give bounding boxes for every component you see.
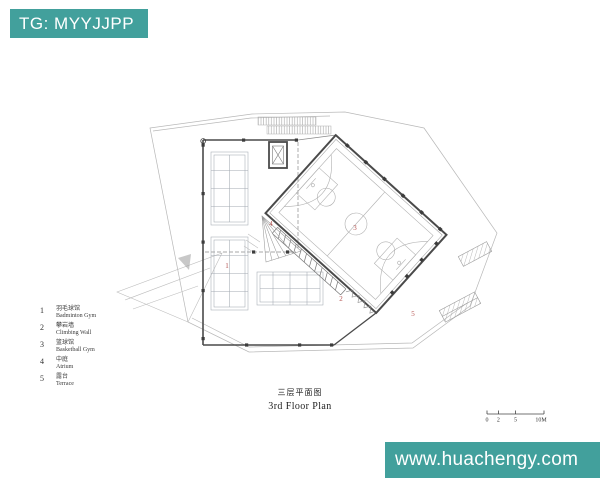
watermark-banner-bottom-right: www.huachengy.com — [385, 442, 600, 478]
legend-item-basketball: 3 篮球馆 Basketball Gym — [40, 340, 170, 354]
legend-label-zh: 露台 — [56, 374, 74, 381]
terrace-bench — [458, 242, 491, 267]
legend-item-climbing-wall: 2 攀岩墙 Climbing Wall — [40, 323, 170, 337]
svg-text:0: 0 — [486, 418, 489, 424]
legend-item-atrium: 4 中庭 Atrium — [40, 357, 170, 371]
elevator-shaft — [269, 142, 287, 168]
legend-label-en: Climbing Wall — [56, 330, 91, 337]
terrace-bench — [439, 292, 480, 322]
terrace-stairs-edge — [346, 287, 375, 314]
legend-number: 4 — [40, 357, 49, 371]
legend-item-badminton: 1 羽毛球馆 Badminton Gym — [40, 306, 170, 320]
room-legend: 1 羽毛球馆 Badminton Gym 2 攀岩墙 Climbing Wall… — [40, 306, 170, 391]
scale-bar-labels: 0 2 5 10M — [486, 418, 548, 424]
legend-label-zh: 篮球馆 — [56, 340, 95, 347]
legend-label-zh: 羽毛球馆 — [56, 306, 96, 313]
badminton-courts — [211, 152, 323, 310]
svg-text:10M: 10M — [535, 418, 547, 424]
legend-label-en: Basketball Gym — [56, 347, 95, 354]
drawing-title-block: 三层平面图 3rd Floor Plan — [0, 387, 600, 412]
legend-number: 1 — [40, 306, 49, 320]
legend-label-zh: 攀岩墙 — [56, 323, 91, 330]
legend-label-zh: 中庭 — [56, 357, 73, 364]
legend-item-terrace: 5 露台 Terrace — [40, 374, 170, 388]
legend-number: 3 — [40, 340, 49, 354]
legend-label-en: Atrium — [56, 364, 73, 371]
climbing-wall — [272, 227, 346, 295]
room-label-terrace: 5 — [411, 310, 415, 318]
legend-number: 2 — [40, 323, 49, 337]
website-url-text: www.huachengy.com — [395, 449, 578, 471]
drawing-title-zh: 三层平面图 — [0, 387, 600, 398]
room-label-climbing-wall: 2 — [339, 295, 343, 303]
room-label-atrium: 4 — [269, 220, 273, 228]
legend-number: 5 — [40, 374, 49, 388]
room-label-basketball: 3 — [353, 224, 357, 232]
drawing-title-en: 3rd Floor Plan — [0, 401, 600, 412]
watermark-banner-top-left: TG: MYYJJPP — [10, 9, 148, 38]
room-number-labels: 1 2 3 4 5 — [225, 220, 415, 318]
watermark-text: TG: MYYJJPP — [19, 14, 134, 34]
svg-text:2: 2 — [497, 418, 500, 424]
svg-text:5: 5 — [514, 418, 517, 424]
roof-louvers — [258, 117, 331, 134]
room-label-badminton: 1 — [225, 262, 229, 270]
legend-label-en: Badminton Gym — [56, 313, 96, 320]
hall-columns — [201, 139, 333, 347]
